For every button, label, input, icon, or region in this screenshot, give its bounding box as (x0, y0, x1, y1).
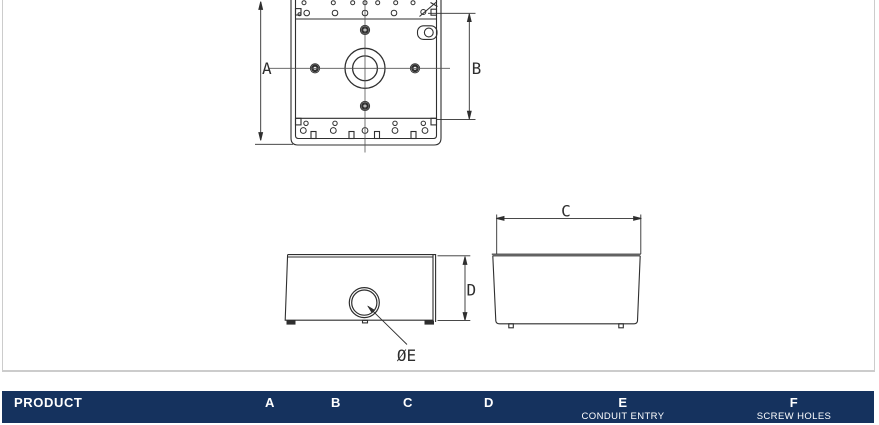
spec-table-header: PRODUCT A B C D E CONDUIT ENTRY F SCREW … (2, 391, 874, 423)
column-header-product: PRODUCT (2, 391, 238, 423)
dimension-label-c: C (561, 202, 571, 221)
technical-drawing: A B ØE D (0, 0, 879, 376)
column-header-product-label: PRODUCT (14, 396, 82, 410)
column-header-a: A (238, 391, 302, 423)
column-header-b: B (302, 391, 370, 423)
dimension-a (255, 2, 293, 145)
column-subheader-conduit-entry: CONDUIT ENTRY (582, 411, 665, 422)
front-view (270, 0, 451, 153)
conduit-diameter-label: ØE (397, 346, 416, 365)
dimension-b (428, 13, 476, 119)
dimension-label-d: D (466, 281, 476, 300)
column-header-f: F SCREW HOLES (714, 391, 874, 423)
dimension-label-b: B (472, 59, 482, 78)
dimension-d (438, 256, 471, 321)
side-view (285, 255, 435, 345)
end-view (492, 254, 641, 328)
column-header-e: E CONDUIT ENTRY (532, 391, 714, 423)
column-header-d: D (446, 391, 532, 423)
ground-lug (418, 26, 438, 40)
column-subheader-screw-holes: SCREW HOLES (757, 411, 832, 422)
dimension-label-a: A (262, 59, 272, 78)
column-header-c: C (370, 391, 446, 423)
